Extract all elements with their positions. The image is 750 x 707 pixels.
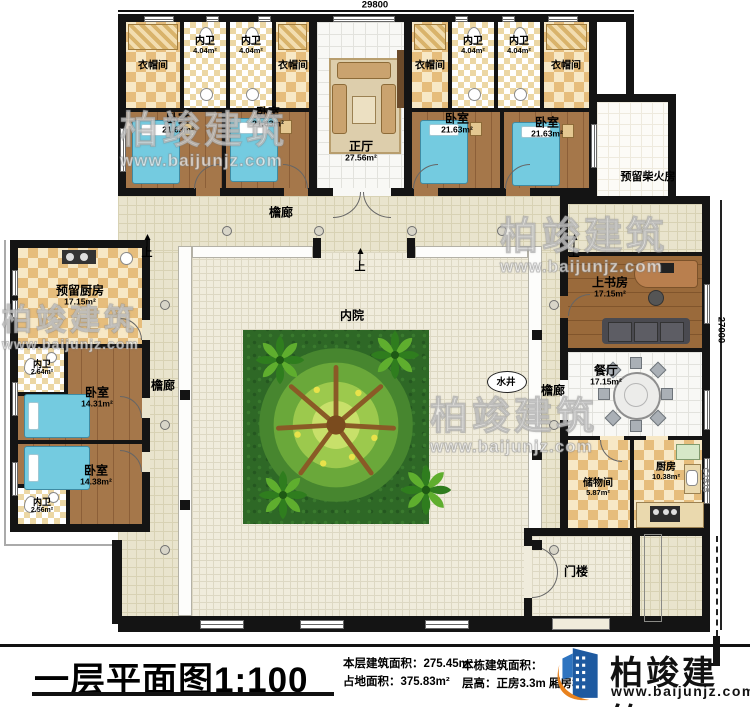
label-veranda-left: 檐廊 (151, 377, 175, 394)
room-label-cloakroom-1: 衣帽间 (138, 60, 168, 71)
wall-segment (272, 22, 276, 108)
column-dot (549, 545, 559, 555)
wall-segment (560, 196, 710, 204)
sofa-icon (337, 62, 391, 79)
computer-icon (660, 263, 674, 273)
column-dot (314, 226, 324, 236)
sofa-icon (332, 84, 347, 134)
pillar (180, 390, 190, 400)
title-underline (32, 692, 334, 696)
door-opening (414, 188, 438, 196)
wardrobe-icon (546, 24, 587, 50)
eave-line (4, 544, 116, 546)
wall-segment (10, 240, 150, 248)
window-icon (333, 16, 395, 22)
room-label-bedroom-1: 卧室21.63m² (162, 113, 194, 136)
pillar (407, 238, 415, 258)
burner-icon (671, 509, 677, 515)
room-label-bedroom-left-2: 卧室14.38m² (80, 465, 112, 488)
window-icon (425, 620, 469, 629)
gate-entrance (552, 618, 610, 630)
wall-segment (500, 112, 504, 188)
wall-segment (112, 540, 122, 624)
label-courtyard: 内院 (340, 307, 364, 324)
door-opening (506, 188, 530, 196)
sink-icon (120, 252, 133, 265)
wall-segment (142, 240, 150, 532)
sofa-cushion (634, 322, 658, 342)
wall-segment (180, 22, 184, 108)
logo-icon (552, 644, 606, 702)
door-opening (524, 546, 532, 598)
room-label-firewood: 预留柴火房 (621, 168, 676, 184)
window-icon (300, 620, 344, 629)
window-icon (12, 462, 18, 496)
room-label-main-hall: 正厅27.56m² (345, 141, 377, 164)
palm-plant (256, 468, 310, 522)
door-opening (196, 188, 220, 196)
room-label-cloakroom-4: 衣帽间 (551, 60, 581, 71)
step-up-marker: 上 (142, 231, 153, 259)
column-dot (160, 545, 170, 555)
window-icon (206, 16, 219, 22)
coffee-table-icon (352, 96, 376, 124)
pillar (532, 540, 542, 550)
chair-icon (661, 388, 673, 400)
sink-icon (468, 88, 481, 101)
window-icon (704, 284, 710, 324)
wall-segment (18, 440, 142, 444)
nightstand-icon (562, 124, 574, 138)
wall-segment (630, 440, 634, 532)
room-label-dining: 餐厅17.15m² (590, 365, 622, 388)
wall-segment (18, 344, 142, 348)
door-opening (142, 452, 150, 472)
room-label-well: 水井 (496, 374, 515, 388)
room-label-bedroom-4: 卧室21.63m² (531, 117, 563, 140)
room-label-bath-left-1: 内卫2.64m² (31, 359, 53, 377)
wall-segment (494, 22, 498, 108)
burner-icon (80, 253, 88, 261)
sink-icon (200, 88, 213, 101)
sofa-cushion (660, 322, 684, 342)
room-label-bath-top-2: 内卫4.04m² (239, 36, 263, 56)
sofa-icon (381, 84, 396, 134)
window-icon (12, 300, 18, 318)
door-opening (560, 296, 568, 318)
wall-segment (309, 22, 317, 188)
room-label-cloakroom-2: 衣帽间 (278, 60, 308, 71)
column-dot (549, 300, 559, 310)
fridge-icon (676, 444, 700, 460)
window-icon (704, 390, 710, 430)
wall-segment (589, 14, 597, 196)
wall-segment (404, 22, 412, 188)
column-dot (160, 300, 170, 310)
room-label-bath-top-4: 内卫4.04m² (507, 36, 531, 56)
wall-segment (626, 14, 634, 102)
step-up-marker: 上 (569, 231, 580, 259)
window-icon (144, 16, 174, 22)
floor-plan: 29800 27000 C1515 (0, 0, 750, 707)
door-opening (646, 436, 668, 440)
window-icon (455, 16, 468, 22)
wall-segment (632, 528, 640, 624)
wardrobe-icon (278, 24, 307, 50)
floor-area-stat: 本层建筑面积：275.45m² (343, 655, 473, 671)
wall-segment (568, 252, 702, 256)
pillar (180, 500, 190, 510)
room-label-gatehouse: 门楼 (564, 563, 588, 580)
column-dot (160, 420, 170, 430)
room-label-kitchen: 厨房10.38m² (652, 462, 680, 482)
wall-segment (66, 488, 70, 524)
room-label-cloakroom-3: 衣帽间 (415, 60, 445, 71)
wall-segment (222, 112, 226, 188)
palm-plant (368, 328, 422, 382)
building-area-stat: 本栋建筑面积： (462, 657, 543, 673)
parapet-wall (192, 246, 313, 258)
wall-segment (226, 22, 230, 108)
label-veranda-right: 檐廊 (541, 382, 565, 399)
room-label-bedroom-left-1: 卧室14.31m² (81, 387, 113, 410)
window-icon (548, 16, 578, 22)
wall-segment (64, 348, 68, 396)
sink-icon (246, 88, 259, 101)
logo-url: www.baijunjz.com (611, 683, 750, 699)
window-icon (200, 620, 244, 629)
parapet-wall (415, 246, 528, 258)
palm-plant (398, 462, 454, 518)
window-code-label: C1515 (701, 467, 711, 492)
door-opening (284, 188, 308, 196)
dimension-line-right (720, 200, 722, 630)
window-icon (591, 124, 597, 168)
room-label-bedroom-3: 卧室21.63m² (441, 113, 473, 136)
burner-icon (653, 509, 659, 515)
wardrobe-icon (128, 24, 178, 50)
land-area-stat: 占地面积：375.83m² (343, 673, 450, 689)
wall-segment (568, 348, 702, 352)
wall-segment (668, 94, 676, 204)
column-dot (407, 226, 417, 236)
window-icon (258, 16, 271, 22)
wall-segment (10, 524, 150, 532)
column-dot (549, 420, 559, 430)
sink-icon (686, 470, 698, 486)
dimension-right: 27000 (716, 317, 727, 343)
chair-icon (630, 420, 642, 432)
burner-icon (66, 253, 74, 261)
wardrobe-icon (414, 24, 446, 50)
wall-segment (589, 94, 676, 102)
steps-hatch (644, 534, 662, 622)
door-opening (142, 398, 150, 418)
room-label-bath-left-2: 内卫2.56m² (31, 497, 53, 515)
dimension-top: 29800 (362, 0, 388, 11)
eave-line (4, 240, 6, 546)
window-icon (120, 128, 126, 172)
label-veranda-top: 檐廊 (269, 204, 293, 221)
chair-icon (598, 388, 610, 400)
burner-icon (663, 509, 669, 515)
window-icon (502, 16, 515, 22)
bed-icon (24, 394, 90, 438)
sofa-cushion (608, 322, 632, 342)
room-label-bedroom-2: 卧室21.63m² (252, 107, 284, 130)
column-dot (497, 226, 507, 236)
room-label-bath-top-3: 内卫4.04m² (461, 36, 485, 56)
wall-segment (540, 22, 544, 108)
window-icon (12, 382, 18, 416)
chair-icon (648, 290, 664, 306)
window-icon (12, 270, 18, 296)
pillar (313, 238, 321, 258)
wall-segment (524, 528, 640, 536)
wall-segment (448, 22, 452, 108)
room-label-kitchen-reserved: 预留厨房17.15m² (56, 285, 104, 308)
door-opening (142, 320, 150, 340)
room-label-storage: 储物间5.87m² (583, 478, 613, 498)
room-label-study: 上书房17.15m² (592, 277, 628, 300)
wall-segment (568, 436, 702, 440)
pillar (532, 450, 542, 460)
palm-plant (253, 333, 307, 387)
chair-icon (630, 357, 642, 369)
pillar (532, 330, 542, 340)
column-dot (222, 226, 232, 236)
parapet-wall (178, 246, 192, 616)
sink-icon (514, 88, 527, 101)
dining-table-inner (624, 383, 648, 407)
tv-cabinet-icon (397, 50, 404, 108)
step-up-marker: 上 (355, 245, 366, 273)
room-label-bath-top-1: 内卫4.04m² (193, 36, 217, 56)
boundary-dashed-line (716, 536, 718, 636)
